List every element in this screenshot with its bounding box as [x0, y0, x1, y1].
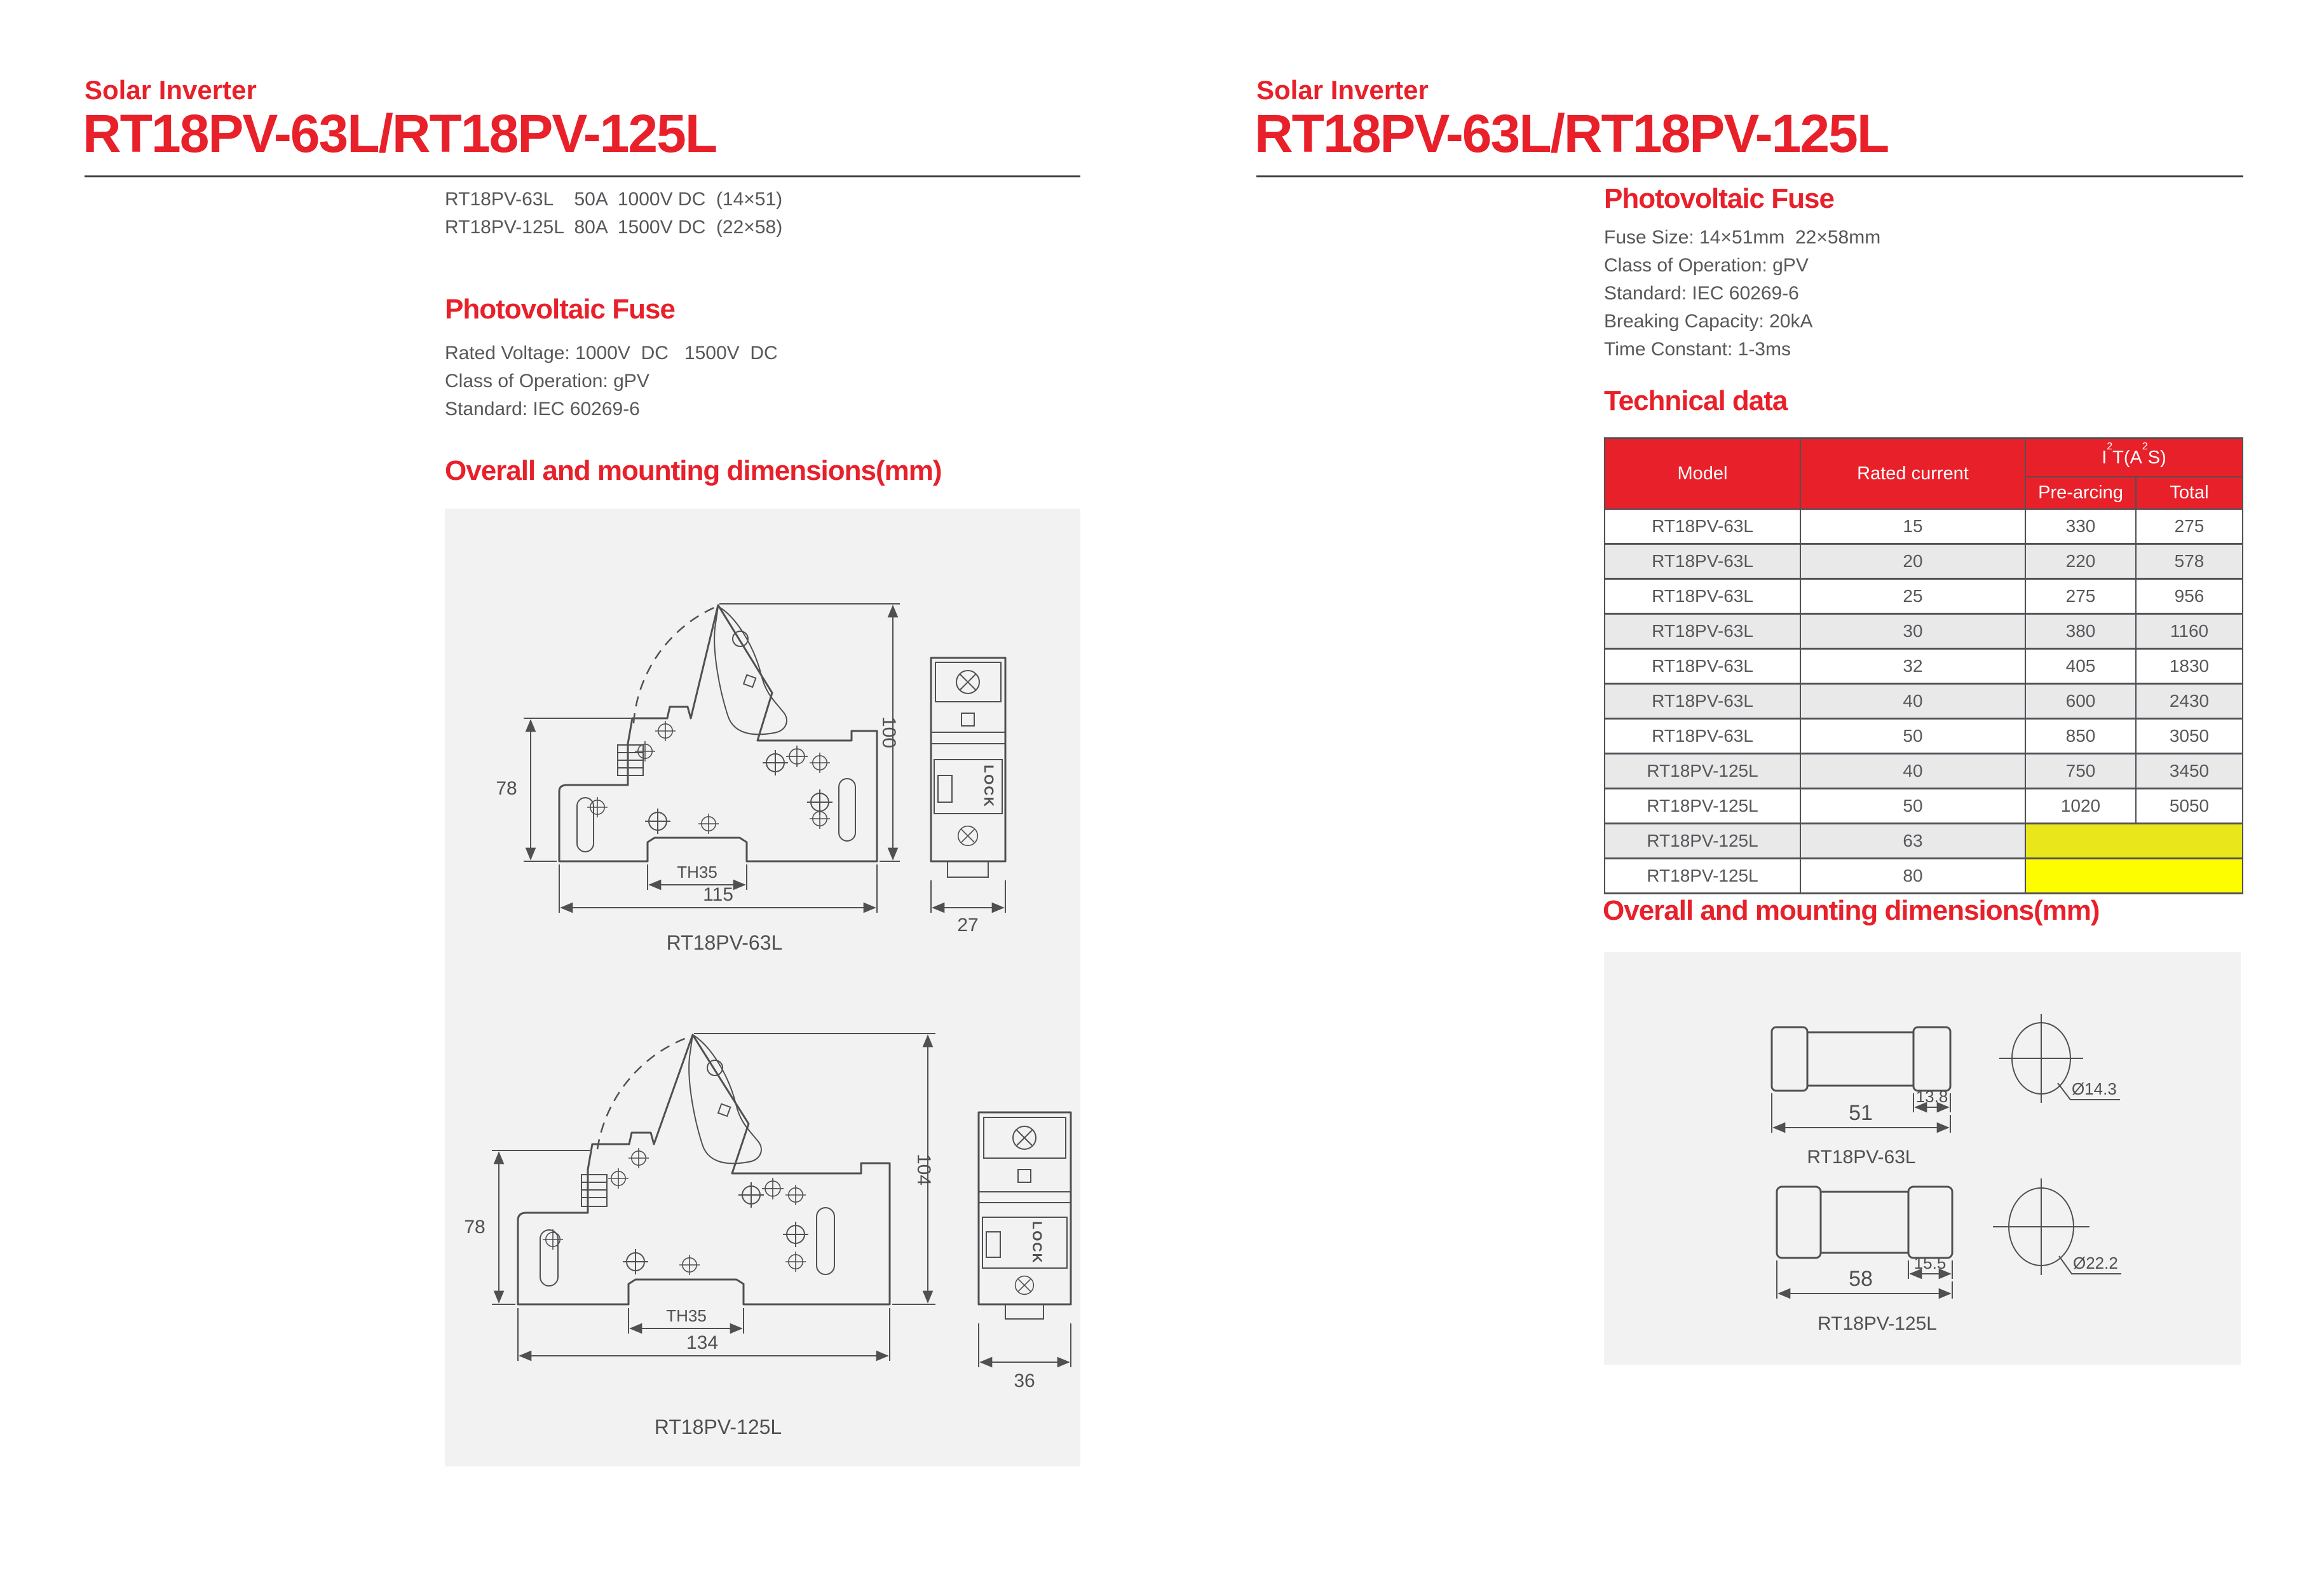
fuse-spec-block-left: Rated Voltage: 1000V DC 1500V DC Class o… [445, 339, 778, 423]
table-cell: 30 [1800, 614, 2025, 649]
dim-height-right: 104 [913, 1154, 934, 1185]
dim-height-left: 78 [464, 1217, 485, 1238]
col-header-pre-arcing: Pre-arcing [2025, 477, 2136, 509]
dim-rail: TH35 [677, 863, 717, 882]
table-row: RT18PV-63L15330275 [1605, 509, 2243, 544]
spec-line: Time Constant: 1-3ms [1604, 336, 1880, 364]
table-cell: 3050 [2136, 719, 2243, 754]
col-header-rated-current: Rated current [1800, 439, 2025, 510]
table-cell: 850 [2025, 719, 2136, 754]
table-row: RT18PV-125L63 [1605, 824, 2243, 859]
drawing-label-63l: RT18PV-63L [667, 931, 783, 954]
lock-label: LOCK [981, 765, 996, 808]
table-row: RT18PV-125L5010205050 [1605, 789, 2243, 824]
col-header-i2t: I2T(A2S) [2025, 439, 2243, 477]
dimension-lines-125l: 78 104 TH35 134 [464, 1034, 935, 1361]
table-cell: RT18PV-63L [1605, 649, 1800, 684]
table-cell: 1160 [2136, 614, 2243, 649]
dim-depth: 36 [1014, 1370, 1035, 1391]
dim-cap-length: 13.8 [1916, 1087, 1948, 1106]
spec-line: Standard: IEC 60269-6 [445, 395, 778, 423]
table-row: RT18PV-63L25275956 [1605, 579, 2243, 614]
dim-depth: 27 [957, 915, 978, 936]
spec-line: Rated Voltage: 1000V DC 1500V DC [445, 339, 778, 367]
page-eyebrow-left: Solar Inverter [85, 75, 257, 106]
table-cell: 32 [1800, 649, 2025, 684]
dimensions-panel-left: 78 100 TH35 115 [445, 509, 1080, 1466]
spec-line: Standard: IEC 60269-6 [1604, 280, 1880, 308]
table-cell: 750 [2025, 754, 2136, 789]
table-cell: 40 [1800, 684, 2025, 719]
product-spec-block: RT18PV-63L 50A 1000V DC (14×51) RT18PV-1… [445, 186, 782, 242]
spec-line: Class of Operation: gPV [445, 367, 778, 395]
page-title-right: RT18PV-63L/RT18PV-125L [1254, 103, 1888, 165]
table-row: RT18PV-125L407503450 [1605, 754, 2243, 789]
technical-data-table: Model Rated current I2T(A2S) Pre-arcing … [1604, 437, 2243, 894]
table-cell: 578 [2136, 544, 2243, 579]
table-cell: 15 [1800, 509, 2025, 544]
table-cell: 1020 [2025, 789, 2136, 824]
table-cell: 380 [2025, 614, 2136, 649]
col-header-total: Total [2136, 477, 2243, 509]
section-heading-photovoltaic-fuse-left: Photovoltaic Fuse [445, 294, 675, 325]
spec-line: Breaking Capacity: 20kA [1604, 308, 1880, 336]
lever-handle [689, 1035, 761, 1163]
dim-length: 58 [1849, 1267, 1873, 1291]
section-heading-dimensions-left: Overall and mounting dimensions(mm) [445, 455, 942, 487]
datasheet-spread: Solar Inverter RT18PV-63L/RT18PV-125L RT… [0, 0, 2324, 1577]
table-cell: RT18PV-125L [1605, 789, 1800, 824]
table-cell: 220 [2025, 544, 2136, 579]
table-cell: 275 [2136, 509, 2243, 544]
table-cell: RT18PV-63L [1605, 614, 1800, 649]
title-rule-left [85, 175, 1080, 177]
table-cell: RT18PV-125L [1605, 859, 1800, 894]
table-cell: RT18PV-125L [1605, 824, 1800, 859]
section-heading-technical-data: Technical data [1604, 385, 1787, 417]
holder-front-view-rt18pv-125l: LOCK 36 [979, 1112, 1071, 1391]
fuse-cartridge-rt18pv-63l: 13.8 51 RT18PV-63L Ø14.3 [1772, 1014, 2120, 1168]
table-cell: 956 [2136, 579, 2243, 614]
holder-profile-rt18pv-125l [518, 1035, 890, 1304]
dim-height-left: 78 [496, 778, 517, 799]
holder-front-view-rt18pv-63l: LOCK 27 [931, 658, 1005, 936]
title-rule-right [1256, 175, 2243, 177]
table-cell: RT18PV-63L [1605, 544, 1800, 579]
lever-handle [714, 606, 787, 734]
dim-diameter: Ø14.3 [2072, 1079, 2117, 1098]
table-cell: 1830 [2136, 649, 2243, 684]
col-header-model: Model [1605, 439, 1800, 510]
dim-rail: TH35 [666, 1306, 707, 1325]
table-cell: RT18PV-63L [1605, 684, 1800, 719]
table-cell: RT18PV-63L [1605, 579, 1800, 614]
page-title-left: RT18PV-63L/RT18PV-125L [83, 103, 716, 165]
spec-line: Fuse Size: 14×51mm 22×58mm [1604, 224, 1880, 252]
fuse-label-63l: RT18PV-63L [1807, 1147, 1915, 1168]
dim-length: 51 [1849, 1101, 1873, 1125]
product-line: RT18PV-125L 80A 1500V DC (22×58) [445, 214, 782, 242]
table-row: RT18PV-63L508503050 [1605, 719, 2243, 754]
section-heading-photovoltaic-fuse-right: Photovoltaic Fuse [1604, 183, 1834, 215]
table-cell: 25 [1800, 579, 2025, 614]
table-row: RT18PV-63L20220578 [1605, 544, 2243, 579]
table-cell: 2430 [2136, 684, 2243, 719]
holder-profile-rt18pv-63l [559, 605, 877, 861]
table-cell: 20 [1800, 544, 2025, 579]
dim-width: 115 [703, 884, 733, 905]
fuse-dimension-drawing: 13.8 51 RT18PV-63L Ø14.3 [1604, 952, 2241, 1365]
table-cell: 3450 [2136, 754, 2243, 789]
table-cell: 63 [1800, 824, 2025, 859]
dimensions-panel-right: 13.8 51 RT18PV-63L Ø14.3 [1604, 952, 2241, 1365]
table-row: RT18PV-63L324051830 [1605, 649, 2243, 684]
product-line: RT18PV-63L 50A 1000V DC (14×51) [445, 186, 782, 214]
table-cell: 5050 [2136, 789, 2243, 824]
table-cell: 330 [2025, 509, 2136, 544]
table-cell: RT18PV-63L [1605, 719, 1800, 754]
table-row: RT18PV-63L303801160 [1605, 614, 2243, 649]
page-eyebrow-right: Solar Inverter [1256, 75, 1429, 106]
dim-diameter: Ø22.2 [2073, 1253, 2118, 1273]
dim-width: 134 [686, 1332, 718, 1353]
table-cell: 50 [1800, 789, 2025, 824]
dim-height-right: 100 [878, 716, 899, 748]
table-cell: 405 [2025, 649, 2136, 684]
table-cell: RT18PV-63L [1605, 509, 1800, 544]
table-cell: RT18PV-125L [1605, 754, 1800, 789]
section-heading-dimensions-right: Overall and mounting dimensions(mm) [1603, 895, 2100, 927]
spec-line: Class of Operation: gPV [1604, 252, 1880, 280]
dimension-lines-63l: 78 100 TH35 115 [496, 604, 900, 913]
mounting-dimension-drawing: 78 100 TH35 115 [445, 509, 1080, 1466]
table-cell: 40 [1800, 754, 2025, 789]
fuse-spec-block-right: Fuse Size: 14×51mm 22×58mm Class of Oper… [1604, 224, 1880, 364]
dim-cap-length: 15.5 [1914, 1253, 1947, 1273]
table-row: RT18PV-125L80 [1605, 859, 2243, 894]
table-cell: 275 [2025, 579, 2136, 614]
lock-label: LOCK [1029, 1221, 1044, 1264]
table-cell: 50 [1800, 719, 2025, 754]
fuse-cartridge-rt18pv-125l: 15.5 58 RT18PV-125L Ø22.2 [1777, 1178, 2121, 1334]
table-cell [2025, 859, 2243, 894]
table-cell: 600 [2025, 684, 2136, 719]
fuse-label-125l: RT18PV-125L [1818, 1313, 1937, 1334]
drawing-label-125l: RT18PV-125L [655, 1416, 782, 1438]
table-cell [2025, 824, 2243, 859]
table-cell: 80 [1800, 859, 2025, 894]
technical-table-body: RT18PV-63L15330275RT18PV-63L20220578RT18… [1605, 509, 2243, 894]
table-row: RT18PV-63L406002430 [1605, 684, 2243, 719]
